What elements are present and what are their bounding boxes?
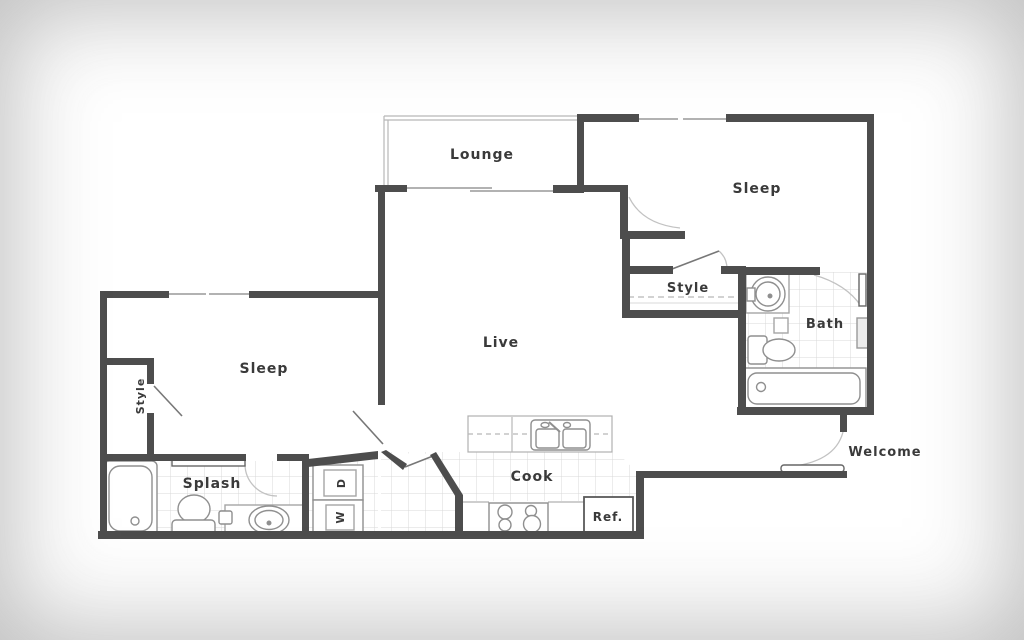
closet-right-door-leaf — [672, 251, 719, 269]
bath-shelf — [774, 318, 788, 333]
bath-wall-cabinet — [857, 318, 868, 348]
room-label-cook: Cook — [511, 469, 554, 485]
appliance-label-washer: W — [334, 510, 347, 523]
wall — [147, 413, 154, 461]
wall — [102, 291, 169, 298]
wall — [375, 185, 407, 192]
wall — [622, 266, 673, 274]
entry-door-arc — [786, 432, 843, 467]
splash-faucet — [219, 511, 232, 524]
stove-burner-3 — [499, 519, 511, 531]
room-label-style-left: Style — [134, 378, 147, 415]
splash-bathtub-drain — [131, 517, 139, 525]
splash-toilet-bowl — [178, 495, 210, 523]
room-label-lounge: Lounge — [450, 147, 514, 163]
wall — [98, 531, 644, 539]
bath-faucet — [747, 288, 755, 301]
bath-sink-inner — [756, 282, 780, 306]
room-label-style-right: Style — [667, 281, 709, 296]
bath-door-leaf — [859, 274, 866, 306]
floorplan-svg: Lounge Sleep Sleep Live Style Style Bath… — [0, 0, 1024, 640]
wall — [622, 310, 746, 318]
wall — [378, 186, 385, 405]
splash-sink-inner — [255, 511, 283, 530]
room-label-live: Live — [483, 335, 519, 351]
wall — [106, 358, 154, 365]
room-label-sleep-right: Sleep — [733, 181, 782, 197]
wall — [622, 238, 630, 318]
stove-burner-4 — [524, 516, 541, 533]
wall — [577, 114, 639, 122]
wall — [577, 114, 584, 193]
stove-burner-2 — [526, 506, 537, 517]
wall — [840, 411, 847, 432]
wall — [726, 114, 874, 122]
entry-door-leaf — [781, 465, 844, 472]
wall — [249, 291, 384, 298]
wall — [147, 358, 154, 384]
wall — [738, 267, 820, 275]
kitchen-sink-bowl-left — [536, 429, 559, 448]
wall — [620, 231, 685, 239]
kitchen-faucet-b — [564, 423, 571, 428]
splash-sink-drain — [267, 521, 271, 525]
kitchen-sink-bowl-right — [563, 429, 586, 448]
wall — [721, 266, 746, 274]
wall — [636, 471, 847, 478]
wall — [636, 473, 644, 539]
wall — [100, 291, 107, 538]
room-label-bath: Bath — [806, 317, 844, 332]
room-label-welcome: Welcome — [848, 445, 921, 460]
room-label-sleep-left: Sleep — [240, 361, 289, 377]
stove-burner-1 — [498, 505, 512, 519]
appliance-label-dryer: D — [335, 478, 348, 488]
appliance-label-refrigerator: Ref. — [593, 510, 624, 524]
wall — [302, 458, 309, 538]
closet-left-door-leaf — [154, 386, 182, 416]
sleep-right-door-arc — [629, 197, 680, 228]
bath-bathtub-drain — [757, 383, 766, 392]
wall — [455, 495, 463, 539]
wall — [738, 268, 746, 415]
wall — [100, 454, 246, 461]
sleep-left-door-leaf — [353, 411, 383, 444]
kitchen-faucet-a — [541, 423, 549, 428]
bath-toilet-bowl — [763, 339, 795, 361]
wall — [867, 114, 874, 415]
bath-sink-drain — [768, 294, 772, 298]
floorplan: Lounge Sleep Sleep Live Style Style Bath… — [0, 0, 1024, 640]
room-label-splash: Splash — [183, 476, 242, 492]
wall — [737, 407, 874, 415]
